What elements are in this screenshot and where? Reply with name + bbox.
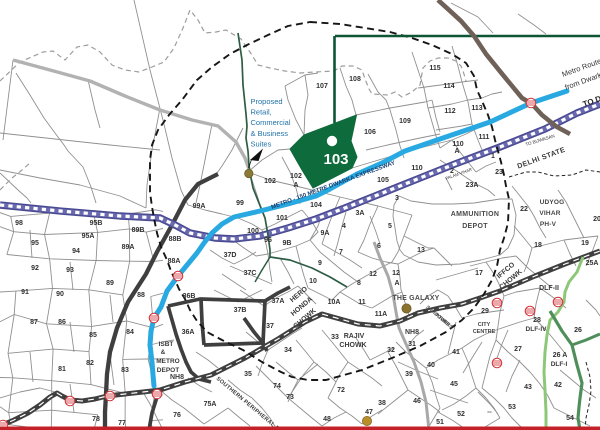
svg-text:28: 28 <box>533 317 541 324</box>
svg-text:23: 23 <box>495 169 503 176</box>
svg-text:31: 31 <box>408 341 416 348</box>
svg-text:29: 29 <box>481 308 489 315</box>
svg-text:A: A <box>454 148 459 155</box>
svg-text:NH8: NH8 <box>170 374 184 381</box>
svg-text:38: 38 <box>378 400 386 407</box>
svg-text:89B: 89B <box>132 227 145 234</box>
svg-text:74: 74 <box>273 383 281 390</box>
svg-text:88A: 88A <box>168 258 181 265</box>
svg-text:76: 76 <box>173 412 181 419</box>
svg-text:3A: 3A <box>356 210 365 217</box>
svg-text:wc.: wc. <box>487 410 492 414</box>
svg-text:CHOWK: CHOWK <box>339 342 366 349</box>
svg-text:47: 47 <box>365 409 373 416</box>
svg-text:113: 113 <box>471 105 482 112</box>
svg-text:95B: 95B <box>90 220 103 227</box>
svg-text:VIHAR: VIHAR <box>539 210 560 217</box>
svg-text:37C: 37C <box>244 270 257 277</box>
svg-text:ISBT: ISBT <box>159 341 174 348</box>
svg-text:110: 110 <box>411 165 422 172</box>
svg-text:95: 95 <box>31 240 39 247</box>
svg-text:Proposed: Proposed <box>251 97 283 106</box>
svg-text:26: 26 <box>574 327 582 334</box>
svg-text:96: 96 <box>264 237 272 244</box>
svg-text:95A: 95A <box>82 233 95 240</box>
svg-text:108: 108 <box>349 76 361 83</box>
svg-text:52: 52 <box>457 411 465 418</box>
svg-text:27: 27 <box>514 346 522 353</box>
svg-text:DLF-I: DLF-I <box>551 361 568 368</box>
svg-text:104: 104 <box>310 202 322 209</box>
svg-text:43: 43 <box>524 384 532 391</box>
svg-text:22: 22 <box>520 206 528 213</box>
svg-text:CENTRE: CENTRE <box>473 329 496 335</box>
svg-text:110: 110 <box>452 141 463 148</box>
svg-text:35: 35 <box>244 371 252 378</box>
svg-text:88B: 88B <box>169 236 182 243</box>
svg-text:32: 32 <box>387 347 395 354</box>
svg-text:&: & <box>161 349 166 356</box>
svg-text:DLF-II: DLF-II <box>539 285 559 292</box>
svg-text:86: 86 <box>58 319 66 326</box>
svg-text:106: 106 <box>364 129 376 136</box>
svg-text:26 A: 26 A <box>553 352 568 359</box>
svg-text:93: 93 <box>66 267 74 274</box>
svg-text:105: 105 <box>377 177 389 184</box>
svg-text:17: 17 <box>475 270 483 277</box>
svg-text:99A: 99A <box>193 203 206 210</box>
svg-text:PH-V: PH-V <box>540 221 557 228</box>
svg-text:109: 109 <box>399 118 411 125</box>
svg-text:AMMUNITION: AMMUNITION <box>451 211 500 218</box>
svg-text:101: 101 <box>276 215 288 222</box>
svg-text:37D: 37D <box>224 252 237 259</box>
svg-text:Retail,: Retail, <box>251 108 272 117</box>
svg-text:10: 10 <box>309 278 317 285</box>
svg-text:19: 19 <box>581 240 589 247</box>
svg-text:75A: 75A <box>204 401 217 408</box>
svg-text:83: 83 <box>121 367 129 374</box>
svg-text:81: 81 <box>58 366 66 373</box>
svg-text:DLF-IV: DLF-IV <box>526 326 548 333</box>
svg-text:5: 5 <box>388 223 392 230</box>
svg-text:37A: 37A <box>272 298 285 305</box>
svg-text:A: A <box>293 182 298 189</box>
svg-text:6: 6 <box>377 243 381 250</box>
svg-text:1: 1 <box>491 153 495 160</box>
svg-text:98: 98 <box>15 220 23 227</box>
svg-text:DEPOT: DEPOT <box>157 367 179 374</box>
svg-text:102: 102 <box>290 173 302 180</box>
svg-text:100: 100 <box>247 228 259 235</box>
svg-text:87: 87 <box>30 319 38 326</box>
svg-text:85: 85 <box>89 332 97 339</box>
svg-text:51: 51 <box>436 419 444 426</box>
svg-text:107: 107 <box>316 83 328 90</box>
svg-text:94: 94 <box>72 248 80 255</box>
svg-text:88: 88 <box>137 292 145 299</box>
svg-text:7: 7 <box>339 249 343 256</box>
svg-text:UDYOG: UDYOG <box>540 199 565 206</box>
svg-text:53: 53 <box>508 404 516 411</box>
svg-text:A: A <box>394 280 399 287</box>
svg-text:48: 48 <box>323 416 331 423</box>
svg-text:10A: 10A <box>328 299 341 306</box>
svg-text:11: 11 <box>358 299 366 306</box>
svg-text:THE GALAXY: THE GALAXY <box>392 295 439 302</box>
svg-text:46: 46 <box>413 398 421 405</box>
svg-text:78: 78 <box>92 416 100 423</box>
svg-text:Suites: Suites <box>251 139 272 148</box>
svg-text:9: 9 <box>318 260 322 267</box>
svg-text:12: 12 <box>392 270 400 277</box>
svg-text:89: 89 <box>106 280 114 287</box>
svg-text:40: 40 <box>427 362 435 369</box>
svg-text:72: 72 <box>337 387 345 394</box>
svg-text:METRO: METRO <box>156 358 179 365</box>
svg-text:39: 39 <box>405 371 413 378</box>
svg-text:8: 8 <box>357 280 361 287</box>
svg-text:DEPOT: DEPOT <box>462 223 488 230</box>
svg-text:90: 90 <box>56 291 64 298</box>
svg-text:9A: 9A <box>321 230 330 237</box>
svg-text:4: 4 <box>342 223 346 230</box>
svg-text:NH8: NH8 <box>405 329 419 336</box>
svg-text:37: 37 <box>266 323 274 330</box>
svg-text:103: 103 <box>323 151 348 168</box>
svg-text:84: 84 <box>126 329 134 336</box>
svg-text:25A: 25A <box>586 260 599 267</box>
svg-text:CITY: CITY <box>478 322 491 328</box>
svg-text:82: 82 <box>86 360 94 367</box>
svg-text:Commercial: Commercial <box>251 118 291 127</box>
svg-text:3: 3 <box>395 195 399 202</box>
svg-text:99: 99 <box>236 200 244 207</box>
svg-text:89A: 89A <box>122 244 135 251</box>
svg-text:RAJIV: RAJIV <box>344 333 365 340</box>
svg-text:77: 77 <box>118 420 126 427</box>
svg-text:111: 111 <box>479 134 490 141</box>
svg-text:112: 112 <box>444 108 455 115</box>
svg-text:42: 42 <box>554 382 562 389</box>
svg-text:36A: 36A <box>182 329 195 336</box>
svg-text:115: 115 <box>429 65 440 72</box>
svg-text:36B: 36B <box>183 293 196 300</box>
svg-text:13: 13 <box>417 247 425 254</box>
svg-text:114: 114 <box>443 83 454 90</box>
svg-text:20: 20 <box>593 216 600 223</box>
svg-text:45: 45 <box>450 381 458 388</box>
svg-text:91: 91 <box>21 289 29 296</box>
svg-text:41: 41 <box>452 349 460 356</box>
svg-text:102: 102 <box>264 178 276 185</box>
svg-text:37B: 37B <box>234 307 247 314</box>
svg-text:23A: 23A <box>466 182 479 189</box>
svg-text:33: 33 <box>331 334 339 341</box>
svg-text:& Business: & Business <box>251 129 289 138</box>
svg-text:11A: 11A <box>375 311 387 318</box>
svg-text:54: 54 <box>566 415 574 422</box>
svg-text:9B: 9B <box>283 240 292 247</box>
svg-text:73: 73 <box>286 394 294 401</box>
svg-text:12: 12 <box>369 271 377 278</box>
svg-text:92: 92 <box>31 265 39 272</box>
svg-text:18: 18 <box>534 242 542 249</box>
svg-text:34: 34 <box>284 347 292 354</box>
